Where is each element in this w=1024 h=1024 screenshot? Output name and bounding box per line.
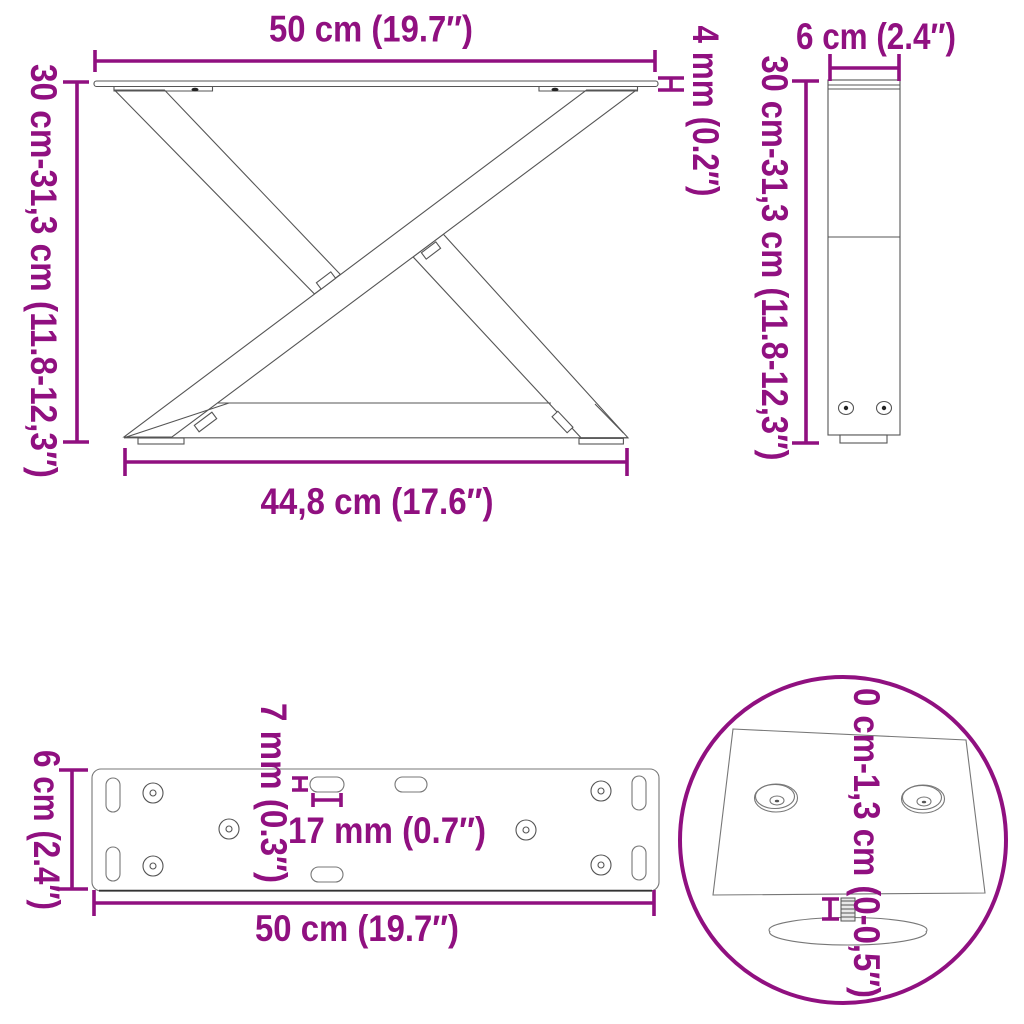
svg-text:0 cm-1,3 cm (0-0,5″): 0 cm-1,3 cm (0-0,5″): [846, 688, 887, 998]
svg-text:7 mm (0.3″): 7 mm (0.3″): [253, 703, 294, 883]
svg-text:50 cm (19.7″): 50 cm (19.7″): [255, 908, 459, 949]
svg-text:17 mm (0.7″): 17 mm (0.7″): [288, 810, 486, 851]
svg-text:50 cm (19.7″): 50 cm (19.7″): [269, 9, 473, 50]
svg-text:30 cm-31,3 cm (11.8-12,3″): 30 cm-31,3 cm (11.8-12,3″): [754, 56, 795, 461]
svg-text:6 cm (2.4″): 6 cm (2.4″): [796, 16, 956, 57]
svg-text:44,8 cm (17.6″): 44,8 cm (17.6″): [261, 481, 494, 522]
svg-text:30 cm-31,3 cm (11.8-12,3″): 30 cm-31,3 cm (11.8-12,3″): [23, 64, 64, 478]
svg-text:6 cm (2.4″): 6 cm (2.4″): [26, 750, 67, 910]
svg-text:4 mm (0.2″): 4 mm (0.2″): [685, 26, 726, 197]
